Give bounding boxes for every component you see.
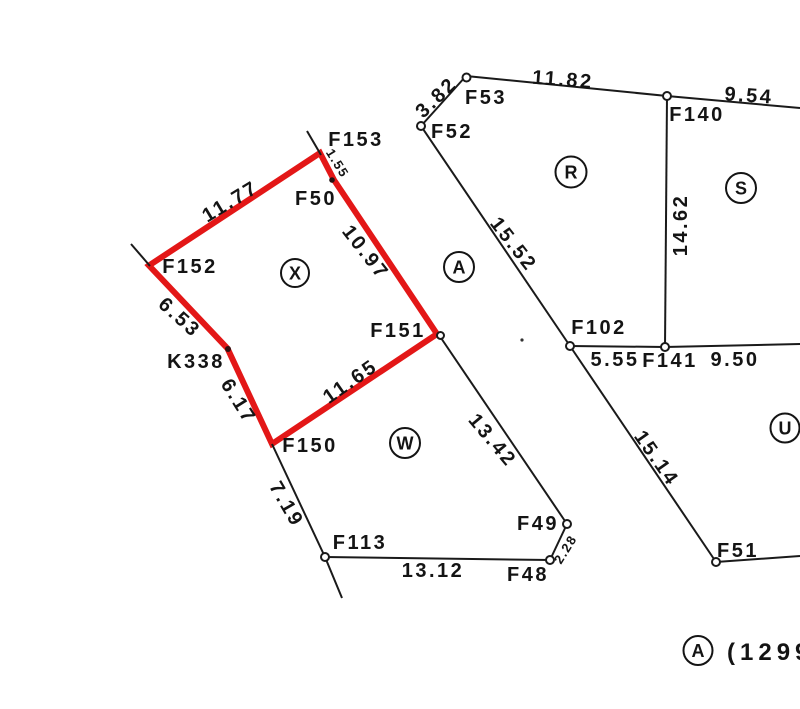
- svg-text:A: A: [692, 641, 705, 661]
- svg-text:U: U: [779, 419, 792, 439]
- svg-text:K338: K338: [167, 351, 225, 373]
- svg-text:F151: F151: [370, 320, 426, 342]
- svg-text:S: S: [735, 179, 747, 199]
- svg-text:13.12: 13.12: [402, 560, 465, 582]
- svg-text:9.50: 9.50: [711, 349, 760, 371]
- svg-text:F113: F113: [333, 532, 387, 554]
- svg-text:F50: F50: [295, 188, 337, 210]
- svg-text:X: X: [289, 264, 301, 284]
- svg-text:R: R: [565, 163, 578, 183]
- svg-text:F152: F152: [162, 256, 218, 278]
- svg-text:F141: F141: [642, 350, 698, 372]
- svg-text:F51: F51: [717, 540, 759, 562]
- svg-text:F49: F49: [517, 513, 559, 535]
- svg-text:5.55: 5.55: [591, 349, 640, 371]
- svg-text:14.62: 14.62: [670, 194, 692, 257]
- svg-text:F48: F48: [507, 564, 549, 586]
- svg-text:9.54: 9.54: [724, 83, 774, 108]
- svg-text:F53: F53: [465, 87, 507, 109]
- svg-text:F140: F140: [669, 104, 725, 126]
- svg-text:W: W: [397, 434, 414, 454]
- svg-text:A: A: [453, 258, 466, 278]
- svg-text:F150: F150: [282, 435, 338, 457]
- svg-text:F52: F52: [431, 121, 473, 143]
- svg-text:(1299: (1299: [727, 639, 800, 666]
- svg-text:F102: F102: [571, 317, 627, 339]
